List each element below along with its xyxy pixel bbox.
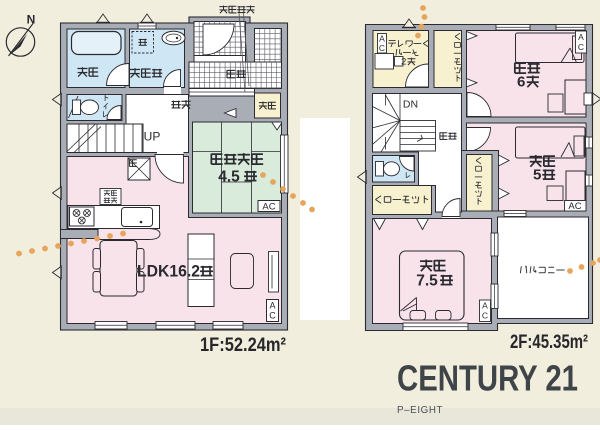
- svg-text:AC: AC: [262, 202, 275, 213]
- svg-text:AC: AC: [568, 201, 581, 212]
- svg-text:UP: UP: [144, 130, 161, 144]
- svg-text:7.5: 7.5: [416, 273, 438, 290]
- svg-text:C: C: [379, 43, 385, 53]
- svg-text:A: A: [269, 301, 275, 311]
- svg-text:1F:52.24m²: 1F:52.24m²: [200, 334, 286, 356]
- svg-text:C: C: [482, 311, 488, 321]
- svg-text:C: C: [578, 42, 584, 52]
- svg-text:2: 2: [401, 57, 406, 68]
- svg-text:CENTURY 21: CENTURY 21: [397, 358, 578, 399]
- svg-text:5: 5: [533, 166, 541, 183]
- svg-text:A: A: [379, 34, 385, 44]
- svg-text:LDK16.2: LDK16.2: [137, 263, 200, 281]
- svg-text:DN: DN: [403, 99, 418, 111]
- svg-text:4.5: 4.5: [218, 169, 240, 186]
- svg-text:P–EIGHT: P–EIGHT: [397, 405, 443, 416]
- svg-text:6: 6: [517, 73, 525, 90]
- svg-text:A: A: [482, 301, 488, 311]
- svg-text:N: N: [27, 13, 36, 27]
- svg-text:A: A: [578, 32, 584, 42]
- svg-text:2F:45.35m²: 2F:45.35m²: [510, 331, 588, 353]
- svg-text:C: C: [269, 311, 276, 321]
